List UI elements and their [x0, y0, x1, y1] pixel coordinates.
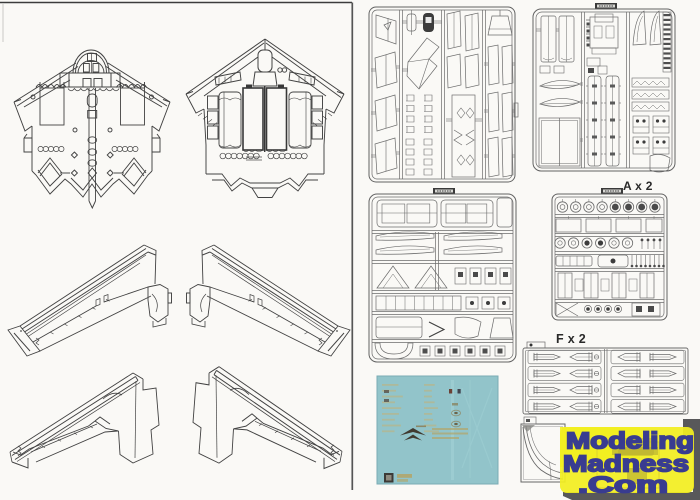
- svg-text:.Com: .Com: [578, 472, 668, 498]
- svg-text:A x 2: A x 2: [623, 179, 653, 193]
- svg-text:F x 2: F x 2: [556, 332, 586, 346]
